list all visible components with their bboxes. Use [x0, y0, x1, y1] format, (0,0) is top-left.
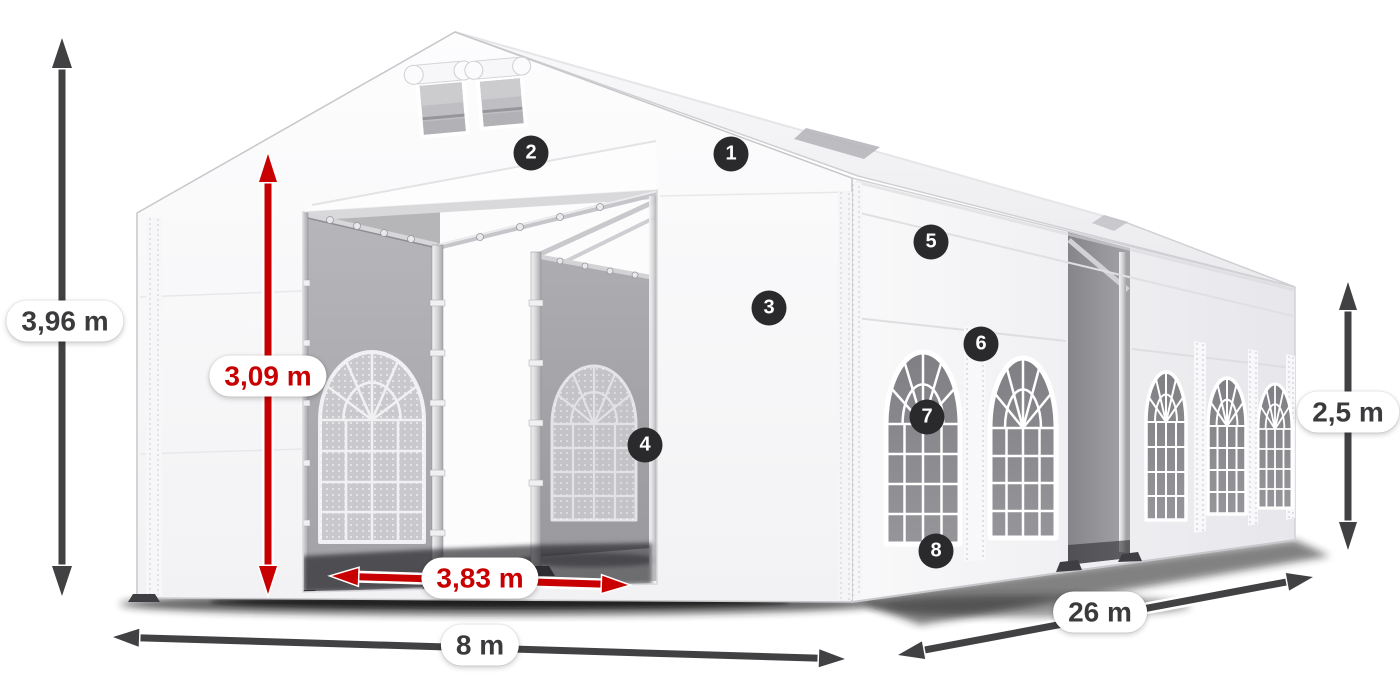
callout-badge-8: 8	[919, 534, 954, 569]
dimension-entrance-height-label: 3,09 m	[209, 356, 326, 397]
tent-interior	[290, 190, 660, 599]
callout-badge-6: 6	[964, 327, 999, 362]
callout-badge-5: 5	[914, 225, 949, 260]
entrance-door-left	[303, 214, 437, 593]
dimension-total-height-label: 3,96 m	[6, 301, 123, 342]
tent-dimension-diagram: 3,96 m 3,09 m 3,83 m 8 m 26 m 2,5 m 1 2 …	[0, 0, 1400, 700]
side-doorway	[1068, 232, 1130, 565]
door-window-left	[320, 352, 424, 542]
side-window-4	[1208, 378, 1246, 514]
dimension-entrance-width-label: 3,83 m	[421, 558, 538, 599]
door-window-right	[552, 366, 636, 520]
dimension-wall-height-label: 2,5 m	[1297, 392, 1399, 433]
side-window-3	[1146, 372, 1186, 520]
callout-badge-7: 7	[910, 400, 945, 435]
side-window-1	[886, 352, 960, 544]
dimension-side-length-label: 26 m	[1053, 592, 1147, 633]
tent-illustration	[0, 0, 1400, 700]
side-window-2	[990, 358, 1056, 538]
callout-badge-2: 2	[514, 136, 549, 171]
side-window-5	[1258, 384, 1292, 508]
dimension-front-width-label: 8 m	[441, 625, 519, 666]
callout-badge-3: 3	[752, 291, 787, 326]
callout-badge-1: 1	[714, 137, 749, 172]
callout-badge-4: 4	[628, 428, 663, 463]
